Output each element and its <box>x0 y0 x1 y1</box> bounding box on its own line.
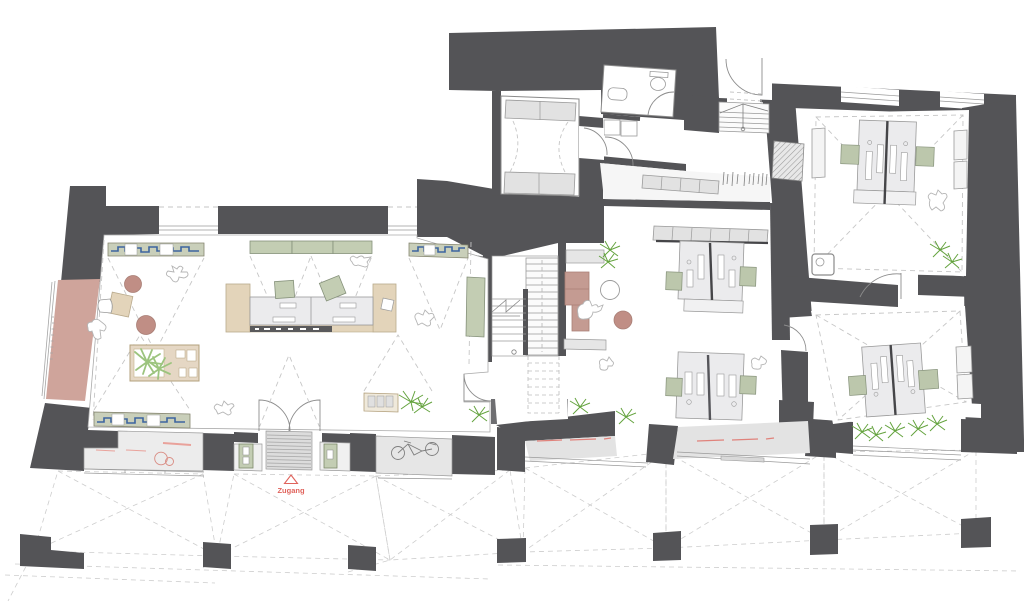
svg-text:Zugang: Zugang <box>277 486 304 495</box>
